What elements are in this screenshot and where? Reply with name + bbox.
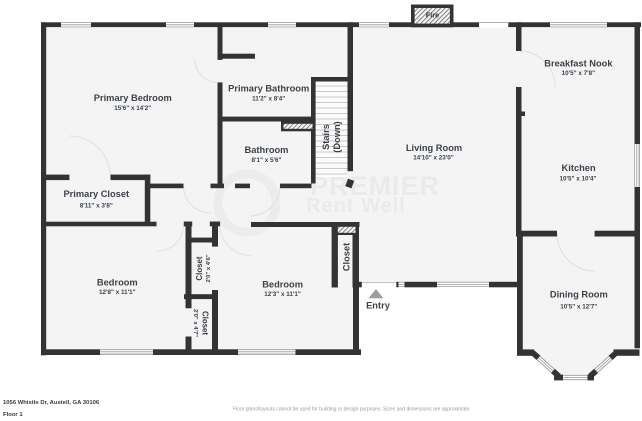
svg-text:10'5" x 10'4": 10'5" x 10'4" [560,176,597,183]
svg-text:Living Room: Living Room [406,143,462,153]
svg-text:Closet: Closet [195,256,204,280]
svg-text:8'1" x 5'6": 8'1" x 5'6" [252,157,282,164]
svg-text:Floor 1: Floor 1 [3,412,23,418]
svg-text:Closet: Closet [201,311,210,335]
svg-text:2'0" x 4'6": 2'0" x 4'6" [206,254,212,282]
svg-text:Closet: Closet [341,243,351,271]
svg-text:15'6" x 14'2": 15'6" x 14'2" [114,105,151,112]
svg-text:Primary Closet: Primary Closet [63,189,129,199]
svg-text:8'11" x 3'8": 8'11" x 3'8" [80,203,113,210]
svg-text:2'0" x 4'7": 2'0" x 4'7" [192,309,198,337]
svg-text:1056 Whistle Dr, Austell, GA 3: 1056 Whistle Dr, Austell, GA 30106 [3,400,100,406]
svg-text:Floor plans/layouts cannot be: Floor plans/layouts cannot be used for b… [233,407,471,413]
svg-text:Bedroom: Bedroom [262,280,303,290]
svg-text:Kitchen: Kitchen [562,163,596,173]
svg-text:Bedroom: Bedroom [97,277,138,287]
svg-text:10'5" x 12'7": 10'5" x 12'7" [560,303,597,310]
svg-text:Primary Bedroom: Primary Bedroom [94,93,172,103]
svg-text:Fire: Fire [426,11,439,20]
svg-text:12'8" x 11'1": 12'8" x 11'1" [99,289,136,296]
svg-text:Primary Bathroom: Primary Bathroom [228,84,309,94]
svg-text:(Down): (Down) [332,121,342,153]
svg-text:Breakfast Nook: Breakfast Nook [544,59,613,69]
svg-text:14'10" x 23'0": 14'10" x 23'0" [413,155,453,162]
svg-text:12'3" x 11'1": 12'3" x 11'1" [264,291,301,298]
svg-text:Bathroom: Bathroom [245,145,289,155]
svg-text:10'5" x 7'8": 10'5" x 7'8" [562,70,595,77]
svg-text:Rent Well: Rent Well [306,195,406,217]
svg-text:Dining Room: Dining Room [550,290,608,300]
svg-text:Stairs: Stairs [321,124,331,150]
svg-text:11'2" x 8'4": 11'2" x 8'4" [252,96,285,103]
svg-text:Entry: Entry [366,301,391,311]
